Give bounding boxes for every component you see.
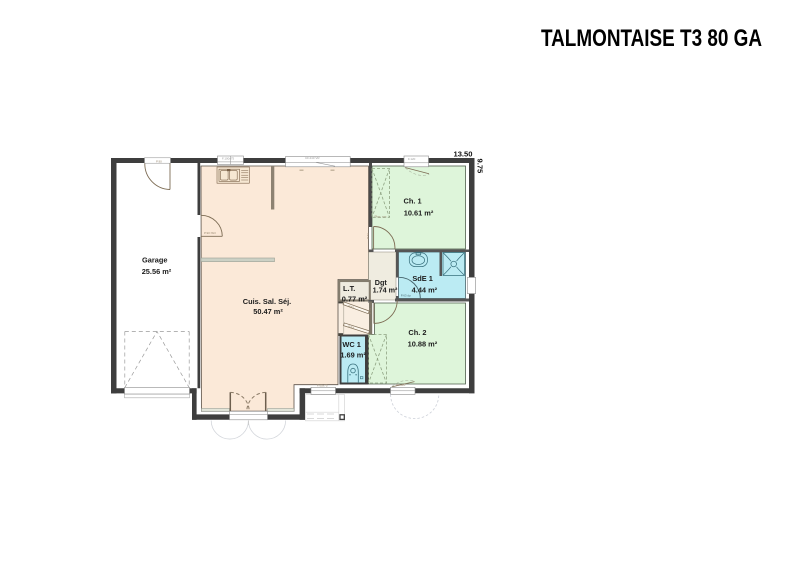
svg-text:4.44 m²: 4.44 m² xyxy=(412,285,438,294)
svg-text:F.60x75: F.60x75 xyxy=(317,384,328,388)
svg-text:Garage: Garage xyxy=(142,255,167,264)
svg-text:Ch. 1: Ch. 1 xyxy=(404,197,422,206)
svg-text:TALMONTAISE T3 80 GA: TALMONTAISE T3 80 GA xyxy=(541,25,762,52)
svg-text:10.88 m²: 10.88 m² xyxy=(408,339,438,348)
svg-text:SdE 1: SdE 1 xyxy=(412,274,433,283)
svg-text:F.100x75: F.100x75 xyxy=(222,156,235,160)
svg-text:CF.240 VR: CF.240 VR xyxy=(305,156,320,160)
svg-text:P.73: P.73 xyxy=(368,308,372,314)
svg-text:P.63 dp: P.63 dp xyxy=(401,293,411,297)
svg-text:0.77 m²: 0.77 m² xyxy=(342,295,368,304)
svg-text:P.73: P.73 xyxy=(366,233,370,239)
svg-text:50.47 m²: 50.47 m² xyxy=(253,307,283,316)
svg-text:9.75: 9.75 xyxy=(475,159,484,175)
svg-text:P.90: P.90 xyxy=(156,159,162,163)
svg-text:Ch. 2: Ch. 2 xyxy=(408,328,426,337)
svg-text:P.90 ISO: P.90 ISO xyxy=(204,231,216,235)
svg-text:L.T.: L.T. xyxy=(343,284,355,293)
svg-text:10.61 m²: 10.61 m² xyxy=(404,208,434,217)
svg-text:1.74 m²: 1.74 m² xyxy=(373,285,398,294)
svg-text:WC 1: WC 1 xyxy=(342,340,360,349)
svg-text:PF.120: PF.120 xyxy=(396,383,406,387)
svg-text:1.69 m²: 1.69 m² xyxy=(340,351,366,360)
svg-text:F.120: F.120 xyxy=(408,157,416,161)
svg-text:25.56 m²: 25.56 m² xyxy=(142,267,172,276)
svg-text:Plac. xxx: Plac. xxx xyxy=(375,214,388,218)
svg-text:13.50: 13.50 xyxy=(453,149,472,158)
svg-text:Cuis. Sal. Séj.: Cuis. Sal. Séj. xyxy=(243,297,291,306)
